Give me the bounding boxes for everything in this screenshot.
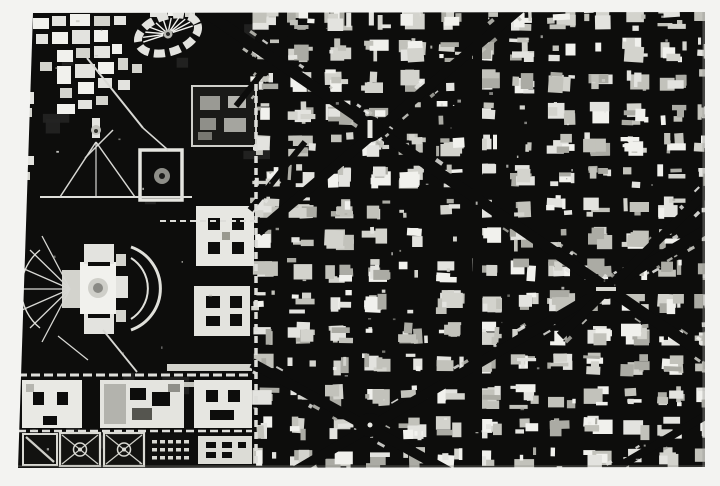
city-map-artwork-print [18,12,705,468]
product-photo-background [0,0,720,486]
city-map-svg [18,12,705,468]
